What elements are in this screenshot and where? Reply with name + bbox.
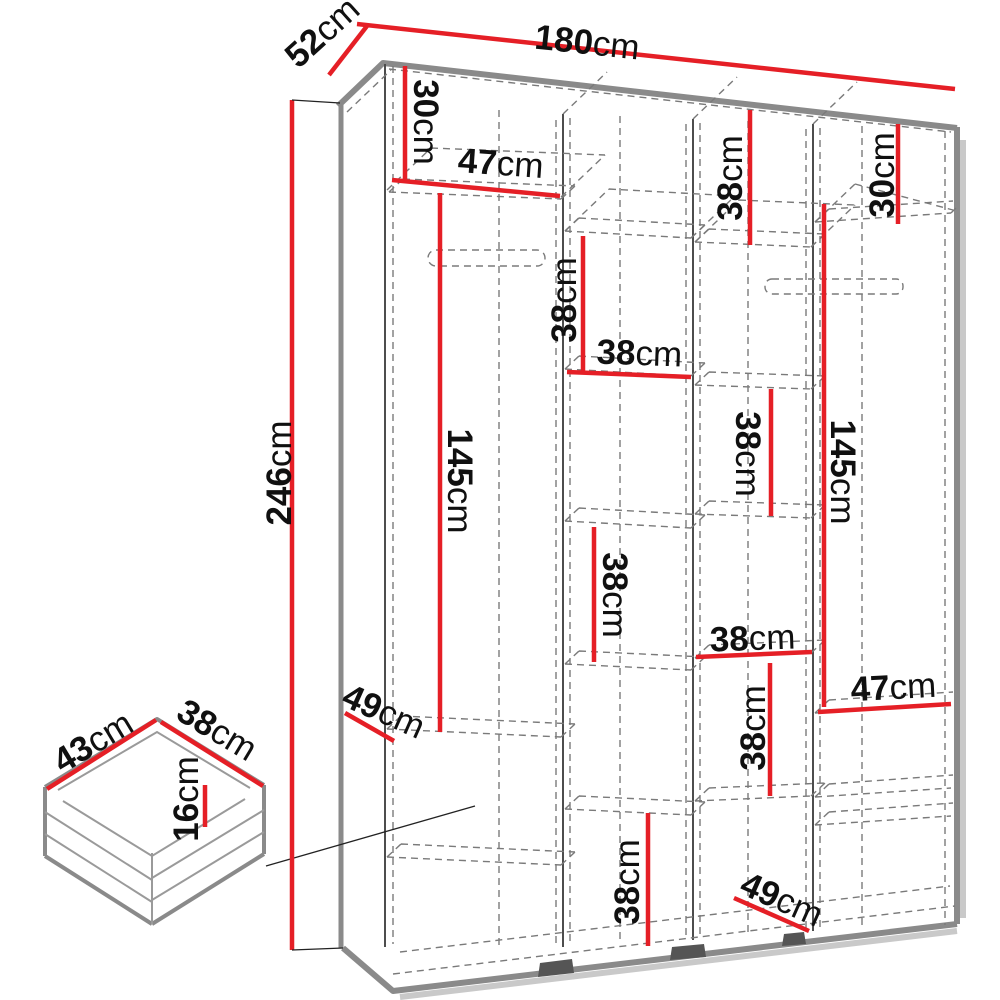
drawer-floor: [63, 799, 245, 856]
dim-label-38-col2-upper: 38cm: [545, 257, 584, 343]
dim-total-depth: 52cm: [277, 0, 367, 76]
dim-ext-top: [292, 100, 340, 103]
dim-label-38-col2-lower: 38cm: [595, 552, 634, 638]
dim-30-top-left: 30cm: [405, 66, 445, 179]
dim-label-145-left: 145cm: [440, 428, 479, 533]
dim-label-47-right: 47cm: [850, 666, 938, 709]
hanging-rod-right: [765, 279, 903, 294]
shelf-col2-3: [565, 508, 705, 528]
shelf-col2-1: [565, 218, 705, 238]
dim-label-38-col2-bottom: 38cm: [608, 839, 647, 925]
bottom-shadow: [400, 931, 957, 997]
dim-30-top-right: 30cm: [863, 124, 902, 224]
dim-label-38-col3-lower-h: 38cm: [709, 618, 796, 660]
dim-drawer-43: 43cm: [46, 703, 156, 789]
dim-label-38-col3-mid: 38cm: [728, 411, 767, 497]
drawer-bottom-left-edge: [45, 856, 152, 924]
shelf-col4-4: [815, 803, 953, 825]
dim-line-total-width: [357, 24, 955, 89]
dim-label-total-width: 180cm: [533, 18, 642, 68]
dim-38-col3-mid: 38cm: [728, 389, 771, 516]
dim-total-width: 180cm: [357, 18, 955, 89]
dim-ext-bottom: [292, 948, 343, 950]
diagram-canvas: 180cm 52cm 246cm 30cm 47cm 38cm 30cm: [0, 0, 1000, 1000]
dim-38-col3-lower-h: 38cm: [696, 618, 812, 660]
foot-2: [670, 944, 706, 960]
dim-38-col3-lower-v: 38cm: [734, 663, 773, 796]
dim-label-drawer-16: 16cm: [167, 756, 206, 842]
dim-47-right: 47cm: [818, 666, 951, 712]
dim-38-col2-mid: 38cm: [567, 333, 691, 377]
dim-label-47-top-left: 47cm: [457, 141, 545, 186]
shelf-col2-4: [565, 651, 705, 670]
dim-label-49-bottom-center: 49cm: [735, 864, 829, 934]
dim-drawer-16: 16cm: [167, 756, 206, 842]
dim-label-total-depth: 52cm: [277, 0, 367, 76]
drawer-leader-line: [266, 806, 475, 866]
dim-38-col3-top: 38cm: [711, 110, 750, 245]
shelf-col2-5: [565, 796, 705, 815]
shelf-col1-low: [387, 844, 575, 865]
dim-145-left: 145cm: [440, 193, 479, 732]
dim-label-38-col3-lower-v: 38cm: [734, 685, 773, 771]
dim-label-total-height: 246cm: [260, 420, 299, 525]
dim-38-col2-upper: 38cm: [545, 236, 584, 372]
dim-label-38-col2-mid: 38cm: [596, 333, 683, 375]
dim-label-38-col3-top: 38cm: [711, 135, 750, 221]
hanging-rod-left: [428, 250, 545, 266]
dim-49-bottom-center: 49cm: [734, 864, 829, 934]
dim-label-30-top-left: 30cm: [406, 79, 445, 165]
dim-total-height: 246cm: [260, 100, 343, 950]
col2-top-depth: [565, 189, 735, 238]
foot-3: [782, 932, 806, 946]
dim-label-145-right: 145cm: [823, 419, 862, 524]
shelf-col4-3: [815, 775, 953, 797]
dimensions: 180cm 52cm 246cm 30cm 47cm 38cm 30cm: [46, 0, 955, 950]
dim-38-col2-lower: 38cm: [594, 527, 634, 662]
dim-49-left: 49cm: [337, 676, 431, 746]
wardrobe-dimension-diagram-page: { "page": { "background": "#ffffff", "de…: [0, 0, 1000, 1000]
dim-38-col2-bottom: 38cm: [608, 813, 648, 946]
dim-label-30-top-right: 30cm: [863, 132, 902, 218]
